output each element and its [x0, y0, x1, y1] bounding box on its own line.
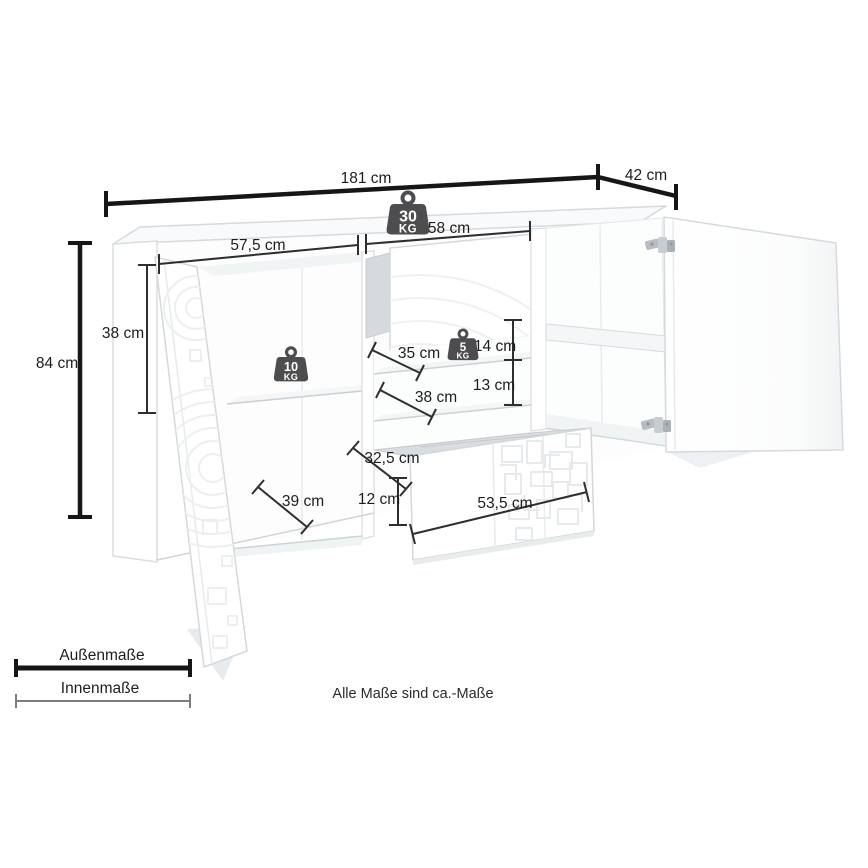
dim-total-width-label: 181 cm: [341, 170, 392, 187]
sideboard-dimension-drawing: 181 cm 42 cm 84 cm 38 cm 57,5 cm 58 cm 3…: [0, 0, 868, 868]
dimension-diagram: 181 cm 42 cm 84 cm 38 cm 57,5 cm 58 cm 3…: [0, 0, 868, 868]
dim-middle-lower-depth-label: 38 cm: [415, 389, 457, 406]
right-door-panel: [664, 217, 843, 452]
legend-inner-label: Innenmaße: [61, 680, 139, 697]
right-compartment: [546, 218, 666, 446]
sideboard: [113, 206, 843, 681]
dim-drawer-depth-label: 32,5 cm: [364, 450, 419, 467]
legend-outer-label: Außenmaße: [59, 647, 144, 664]
dim-middle-upper-depth-label: 35 cm: [398, 345, 440, 362]
weight-unit: KG: [284, 372, 299, 382]
dim-gap-lower-label: 13 cm: [473, 377, 515, 394]
right-door-open: [640, 217, 843, 468]
dim-left-inner-height-label: 38 cm: [102, 325, 144, 342]
left-side-panel: [113, 241, 157, 562]
weight-icon-ring: [403, 193, 414, 204]
approx-measures-note: Alle Maße sind ca.-Maße: [332, 686, 493, 702]
dim-drawer-inner-width-label: 53,5 cm: [477, 495, 532, 512]
dim-drawer-inner-height-label: 12 cm: [358, 491, 400, 508]
dim-total-height-label: 84 cm: [36, 355, 78, 372]
dim-total-height: [68, 243, 92, 517]
dim-total-depth-label: 42 cm: [625, 167, 667, 184]
dim-gap-upper-label: 14 cm: [474, 338, 516, 355]
top-drawer-side-gap: [366, 253, 390, 338]
weight-unit: KG: [399, 224, 417, 236]
weight-unit: KG: [456, 352, 469, 361]
dim-middle-inner-width-label: 58 cm: [428, 220, 470, 237]
dim-left-shelf-depth-label: 39 cm: [282, 493, 324, 510]
weight-icon-30kg: 30 KG: [387, 193, 430, 236]
dim-left-inner-width-label: 57,5 cm: [230, 237, 285, 254]
legend: Außenmaße Innenmaße: [16, 647, 190, 708]
middle-divider-right: [531, 228, 546, 431]
right-door-shadow: [667, 450, 760, 468]
